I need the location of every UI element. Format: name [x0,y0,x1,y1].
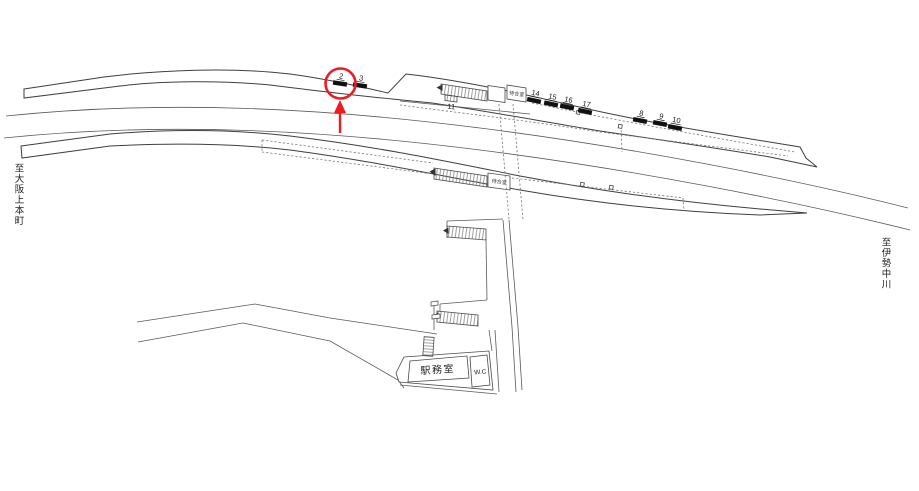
billboard-marker-10: 10 [668,114,684,131]
underpass-passage-dashed [499,104,523,220]
upper-platform [24,70,817,167]
billboard-marker-9: 9 [653,110,669,127]
upper-platform-kiosk-box [488,86,505,103]
destination-left-label: 至大阪上本町 [13,163,23,226]
gate-posts [431,301,440,319]
billboard-11-label: 11 [447,102,456,112]
entrance-steps [423,337,434,357]
wc-label: W.C [474,368,487,376]
upper-platform-billboard-11-box [445,95,457,102]
billboard-marker-8: 8 [633,107,649,124]
destination-right-label: 至伊勢中川 [880,237,890,290]
billboard-marker-16: 16 [560,94,577,111]
approach-road [137,304,437,388]
diagram-canvas: 11 待合室 待合室 [0,0,919,491]
billboard-marker-2: 2 [333,71,349,87]
highlight-arrow-head [334,100,346,113]
station-layout-diagram: 11 待合室 待合室 [0,0,919,491]
